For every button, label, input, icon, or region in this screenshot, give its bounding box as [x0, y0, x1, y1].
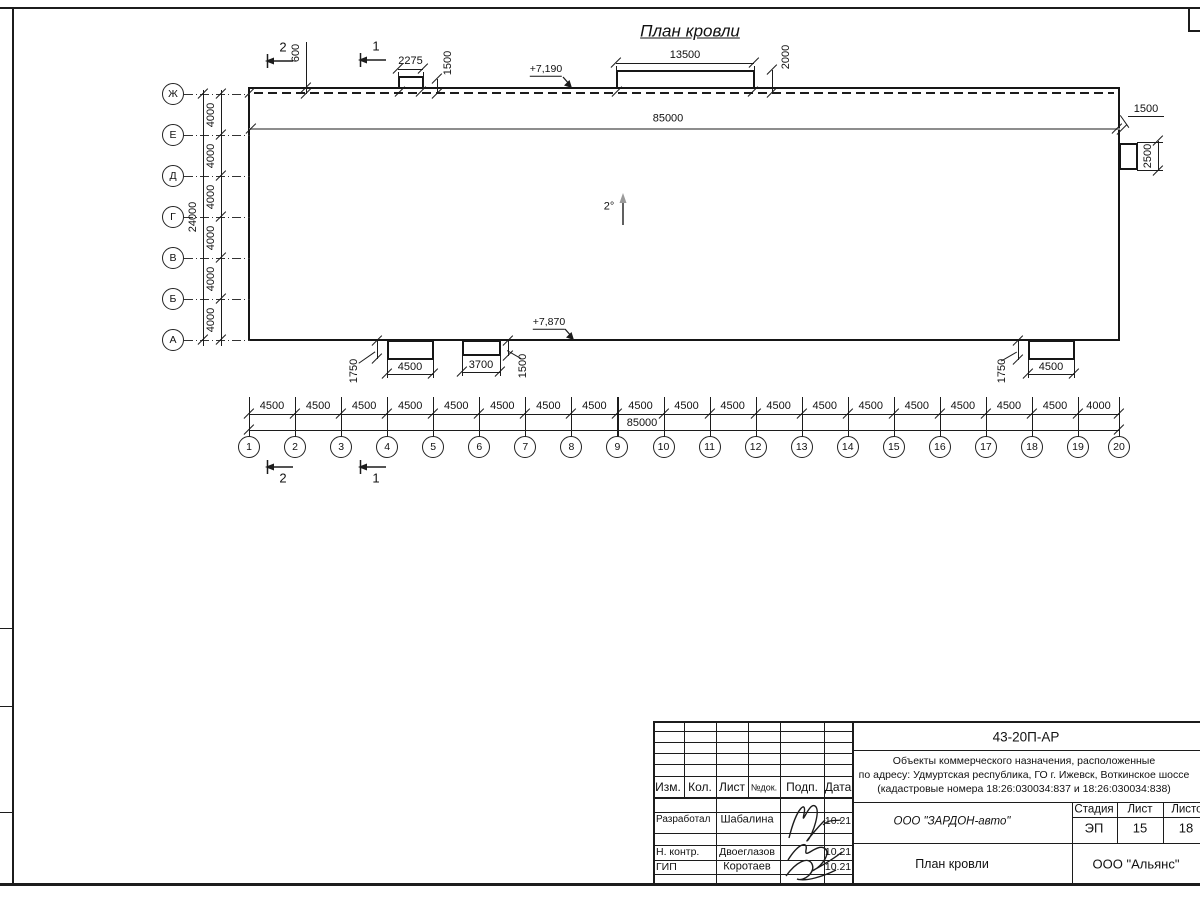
ext-line — [433, 360, 434, 378]
dim-label-bottom: 4000 — [1086, 400, 1110, 412]
ext-line — [754, 66, 755, 72]
titleblock-address-line3: (кадастровые номера 18:26:030034:837 и 1… — [877, 784, 1171, 795]
dim-label-bottom: 4500 — [674, 400, 698, 412]
titleblock-stage-label: Стадия — [1074, 804, 1113, 816]
dim-label-bottom: 4500 — [444, 400, 468, 412]
axis-bubble-bottom: 15 — [883, 436, 905, 458]
axis-bubble-bottom: 2 — [284, 436, 306, 458]
axis-extension-line — [986, 397, 987, 440]
right-ledge-offset-label: 1500 — [1134, 103, 1158, 115]
titleblock-col-izm: Изм. — [655, 781, 681, 793]
titleblock-col-podp: Подп. — [786, 781, 818, 793]
titleblock-line — [653, 731, 852, 732]
canopy-small-width-label: 2275 — [398, 55, 422, 67]
canopy2-width-label: 3700 — [469, 359, 493, 371]
ext-line — [398, 72, 399, 88]
frame-corner-notch-v — [1188, 7, 1190, 31]
dim-label-bottom: 4500 — [536, 400, 560, 412]
titleblock-line — [653, 753, 852, 754]
frame-left-line — [12, 7, 14, 885]
canopy3-width-label: 4500 — [1039, 361, 1063, 373]
frame-bottom-line — [0, 883, 1200, 886]
right-ledge-offset-line — [1128, 116, 1164, 117]
canopy3-width-line — [1028, 374, 1074, 375]
dim-label-bottom: 4500 — [352, 400, 376, 412]
axis-bubble-left: А — [162, 329, 184, 351]
dim-label-bottom: 4500 — [306, 400, 330, 412]
dim-label-total-bottom: 85000 — [627, 417, 658, 429]
elevation-mark-top: +7,190 — [530, 64, 562, 77]
elevation-arrow-icon — [563, 328, 579, 343]
slope-label: 2° — [604, 202, 615, 213]
frame-corner-notch-h — [1188, 30, 1200, 32]
axis-extension-line — [479, 397, 480, 440]
dim-label-bottom: 4500 — [812, 400, 836, 412]
frame-margin-tick — [0, 706, 12, 707]
right-ledge-rect — [1119, 143, 1138, 170]
dim-label-left: 4000 — [205, 266, 217, 290]
axis-bubble-bottom: 14 — [837, 436, 859, 458]
ext-line — [462, 356, 463, 376]
section-2-label-bottom: 2 — [279, 472, 286, 485]
titleblock-role-ncontrol: Н. контр. — [656, 847, 699, 858]
section-arrow-icon — [356, 51, 388, 69]
canopy-top-rect — [616, 70, 755, 89]
dim-label-left: 4000 — [205, 102, 217, 126]
axis-extension-line — [664, 397, 665, 440]
dim-label-bottom: 4500 — [766, 400, 790, 412]
titleblock-line — [1072, 817, 1200, 818]
canopy3-depth-label: 1750 — [996, 359, 1008, 383]
titleblock-line — [684, 721, 685, 797]
dim-label-bottom: 4500 — [260, 400, 284, 412]
ext-line — [387, 360, 388, 378]
titleblock-line — [748, 721, 749, 797]
titleblock-line — [653, 776, 852, 777]
titleblock-sheets-label: Листов — [1171, 804, 1200, 816]
elevation-mark-bottom: +7,870 — [533, 317, 565, 330]
titleblock-doc-number: 43-20П-АР — [993, 730, 1060, 744]
titleblock-org: ООО "Альянс" — [1093, 858, 1180, 871]
titleblock-sheets-value: 18 — [1179, 822, 1193, 835]
ext-line — [500, 356, 501, 376]
axis-bubble-bottom: 7 — [514, 436, 536, 458]
axis-extension-line — [1032, 397, 1033, 440]
dim-line-total-left — [203, 90, 204, 346]
dim-label-bottom: 4500 — [997, 400, 1021, 412]
canopy2-width-line — [462, 372, 500, 373]
frame-margin-tick — [0, 812, 12, 813]
section-2-label: 2 — [279, 41, 286, 54]
dim-label-bottom: 4500 — [398, 400, 422, 412]
signature — [778, 836, 852, 884]
axis-extension-line — [295, 397, 296, 440]
frame-margin-tick — [0, 628, 12, 629]
dim-label-bottom: 4500 — [905, 400, 929, 412]
dim-label-left: 4000 — [205, 225, 217, 249]
building-length-label: 85000 — [653, 114, 684, 125]
titleblock-doc-title: План кровли — [915, 858, 989, 871]
titleblock-line — [1117, 802, 1118, 843]
drawing-sheet: План кровли 85000 2° +7,190 +7,870 2 1 2 — [0, 0, 1200, 900]
canopy-top-depth-label: 2000 — [780, 45, 792, 69]
axis-extension-line — [802, 397, 803, 440]
dim-line-total-bottom — [249, 430, 1119, 431]
drawing-title: План кровли — [640, 23, 740, 40]
titleblock-address-line2: по адресу: Удмуртская республика, ГО г. … — [859, 770, 1190, 781]
axis-extension-line — [525, 397, 526, 440]
ext-line — [1028, 360, 1029, 378]
dim-label-bottom: 4500 — [720, 400, 744, 412]
axis-bubble-bottom: 9 — [606, 436, 628, 458]
axis-bubble-bottom: 10 — [653, 436, 675, 458]
bottom-canopy2-rect — [462, 340, 501, 356]
axis-extension-line — [571, 397, 572, 440]
titleblock-name-developer: Шабалина — [720, 815, 773, 826]
axis-bubble-bottom: 6 — [468, 436, 490, 458]
axis-bubble-bottom: 17 — [975, 436, 997, 458]
axis-extension-line — [1078, 397, 1079, 440]
titleblock-role-developer: Разработал — [656, 815, 710, 825]
parapet-offset-ext — [306, 42, 307, 88]
parapet-dashed-line — [254, 92, 1114, 94]
section-1-label: 1 — [372, 40, 379, 53]
bottom-canopy1-rect — [387, 340, 434, 360]
ext-line — [423, 72, 424, 88]
axis-bubble-bottom: 20 — [1108, 436, 1130, 458]
elevation-arrow-icon — [561, 76, 577, 91]
canopy-small-depth-label: 1500 — [442, 51, 454, 75]
dim-label-left: 4000 — [205, 184, 217, 208]
parapet-offset-label: 600 — [290, 44, 302, 62]
axis-bubble-left: В — [162, 247, 184, 269]
dim-label-bottom: 4500 — [490, 400, 514, 412]
dim-label-bottom: 4500 — [628, 400, 652, 412]
dim-line-segments-left — [221, 90, 222, 346]
axis-bubble-left: Б — [162, 288, 184, 310]
canopy-top-width-line — [616, 63, 754, 64]
axis-bubble-bottom: 18 — [1021, 436, 1043, 458]
axis-extension-line — [710, 397, 711, 440]
axis-extension-line — [894, 397, 895, 440]
axis-bubble-bottom: 19 — [1067, 436, 1089, 458]
ext-line — [1074, 360, 1075, 378]
titleblock-line — [653, 764, 852, 765]
dim-label-bottom: 4500 — [582, 400, 606, 412]
bottom-canopy3-rect — [1028, 340, 1075, 360]
titleblock-col-ndok: №док. — [751, 784, 777, 793]
dim-line-segments-bottom — [249, 414, 1119, 415]
titleblock-name-ncontrol: Двоеглазов — [719, 847, 775, 858]
axis-extension-line — [387, 397, 388, 440]
axis-extension-line — [756, 397, 757, 440]
axis-bubble-bottom: 11 — [699, 436, 721, 458]
canopy1-width-line — [387, 374, 433, 375]
dim-label-bottom: 4500 — [859, 400, 883, 412]
axis-bubble-bottom: 3 — [330, 436, 352, 458]
titleblock-line — [653, 742, 852, 743]
titleblock-name-gip: Коротаев — [723, 862, 771, 873]
axis-extension-line — [940, 397, 941, 440]
titleblock-role-gip: ГИП — [656, 862, 677, 873]
dim-label-bottom: 4500 — [1043, 400, 1067, 412]
slope-arrow-icon — [617, 193, 629, 227]
dim-label-total-left: 24000 — [187, 202, 199, 233]
axis-extension-line — [341, 397, 342, 440]
building-outline — [248, 87, 1120, 341]
dim-label-bottom: 4500 — [951, 400, 975, 412]
axis-extension-line — [617, 397, 618, 440]
axis-bubble-bottom: 12 — [745, 436, 767, 458]
titleblock-company: ООО "ЗАРДОН-авто" — [894, 816, 1011, 828]
axis-bubble-bottom: 13 — [791, 436, 813, 458]
dim-label-left: 4000 — [205, 143, 217, 167]
axis-bubble-left: Ж — [162, 83, 184, 105]
axis-extension-line — [848, 397, 849, 440]
axis-bubble-bottom: 1 — [238, 436, 260, 458]
right-ledge-depth-line — [1158, 141, 1159, 171]
axis-bubble-left: Д — [162, 165, 184, 187]
titleblock-line — [1163, 802, 1164, 843]
axis-bubble-bottom: 8 — [560, 436, 582, 458]
canopy-top-width-label: 13500 — [670, 49, 701, 61]
section-1-label-bottom: 1 — [372, 472, 379, 485]
titleblock-stage-value: ЭП — [1085, 822, 1104, 835]
axis-bubble-bottom: 5 — [422, 436, 444, 458]
axis-extension-line — [433, 397, 434, 440]
titleblock-col-list: Лист — [719, 781, 745, 793]
titleblock-line — [653, 721, 1200, 723]
ext-line — [616, 66, 617, 72]
titleblock-sheet-value: 15 — [1133, 822, 1147, 835]
titleblock-col-data: Дата — [825, 781, 852, 793]
axis-bubble-left: Г — [162, 206, 184, 228]
right-ledge-depth-label: 2500 — [1142, 144, 1154, 168]
axis-bubble-bottom: 16 — [929, 436, 951, 458]
frame-top-line — [0, 7, 1200, 9]
canopy1-width-label: 4500 — [398, 361, 422, 373]
titleblock-line — [852, 843, 1200, 844]
axis-extension-line — [1119, 397, 1120, 440]
dim-label-left: 4000 — [205, 307, 217, 331]
building-length-dim-line — [249, 128, 1120, 130]
titleblock-col-kol: Кол. — [688, 781, 712, 793]
axis-extension-line — [249, 397, 250, 440]
titleblock-sheet-label: Лист — [1128, 804, 1153, 816]
titleblock-line — [852, 750, 1200, 751]
titleblock-address-line1: Объекты коммерческого назначения, распол… — [893, 756, 1155, 767]
axis-bubble-left: Е — [162, 124, 184, 146]
axis-bubble-bottom: 4 — [376, 436, 398, 458]
